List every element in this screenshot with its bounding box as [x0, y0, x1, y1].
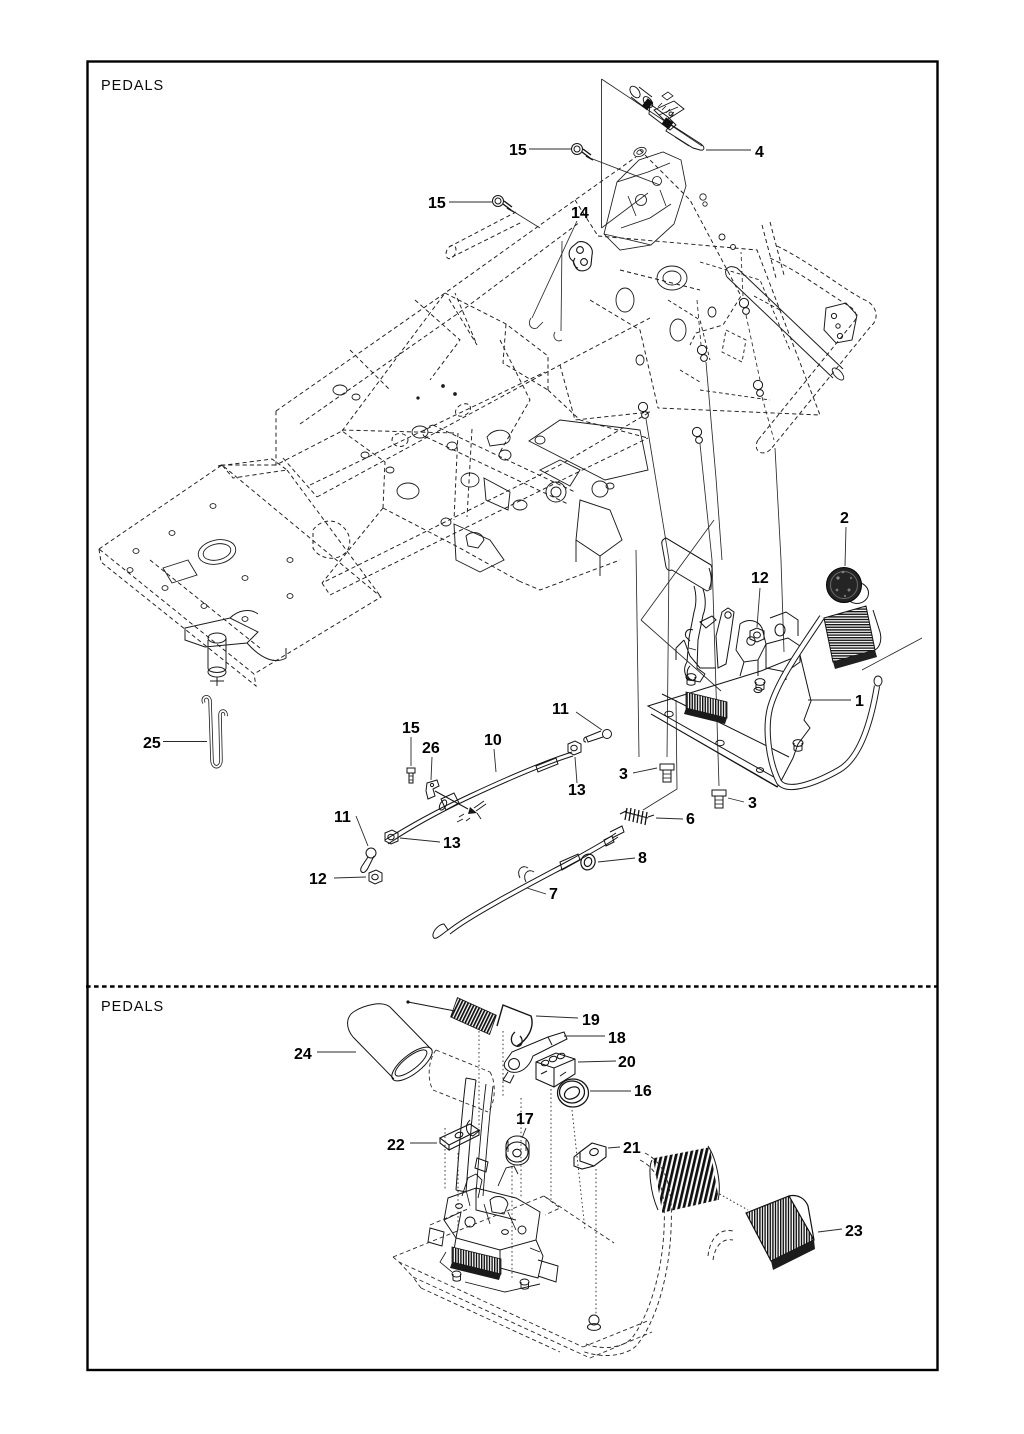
svg-text:16: 16	[634, 1083, 652, 1100]
svg-text:6: 6	[686, 811, 695, 828]
svg-text:21: 21	[623, 1140, 641, 1157]
svg-text:3: 3	[619, 766, 628, 783]
svg-text:15: 15	[509, 142, 527, 159]
svg-text:26: 26	[422, 740, 440, 757]
svg-text:13: 13	[568, 782, 586, 799]
svg-text:2: 2	[840, 510, 849, 527]
svg-text:7: 7	[549, 886, 558, 903]
svg-text:23: 23	[845, 1223, 863, 1240]
svg-text:11: 11	[552, 701, 569, 718]
svg-text:17: 17	[516, 1111, 534, 1128]
svg-text:12: 12	[309, 871, 327, 888]
svg-text:11: 11	[334, 809, 351, 826]
svg-text:18: 18	[608, 1030, 626, 1047]
svg-text:22: 22	[387, 1137, 405, 1154]
svg-text:13: 13	[443, 835, 461, 852]
svg-text:12: 12	[751, 570, 769, 587]
svg-text:15: 15	[402, 720, 420, 737]
svg-text:20: 20	[618, 1054, 636, 1071]
svg-text:24: 24	[294, 1046, 312, 1063]
svg-text:10: 10	[484, 732, 502, 749]
svg-text:8: 8	[638, 850, 647, 867]
svg-text:15: 15	[428, 195, 446, 212]
svg-text:4: 4	[755, 144, 764, 161]
svg-text:PEDALS: PEDALS	[101, 999, 164, 1015]
svg-text:3: 3	[748, 795, 757, 812]
svg-text:1: 1	[855, 693, 864, 710]
svg-text:25: 25	[143, 735, 161, 752]
svg-text:PEDALS: PEDALS	[101, 78, 164, 94]
svg-text:14: 14	[571, 205, 589, 222]
svg-text:19: 19	[582, 1012, 600, 1029]
